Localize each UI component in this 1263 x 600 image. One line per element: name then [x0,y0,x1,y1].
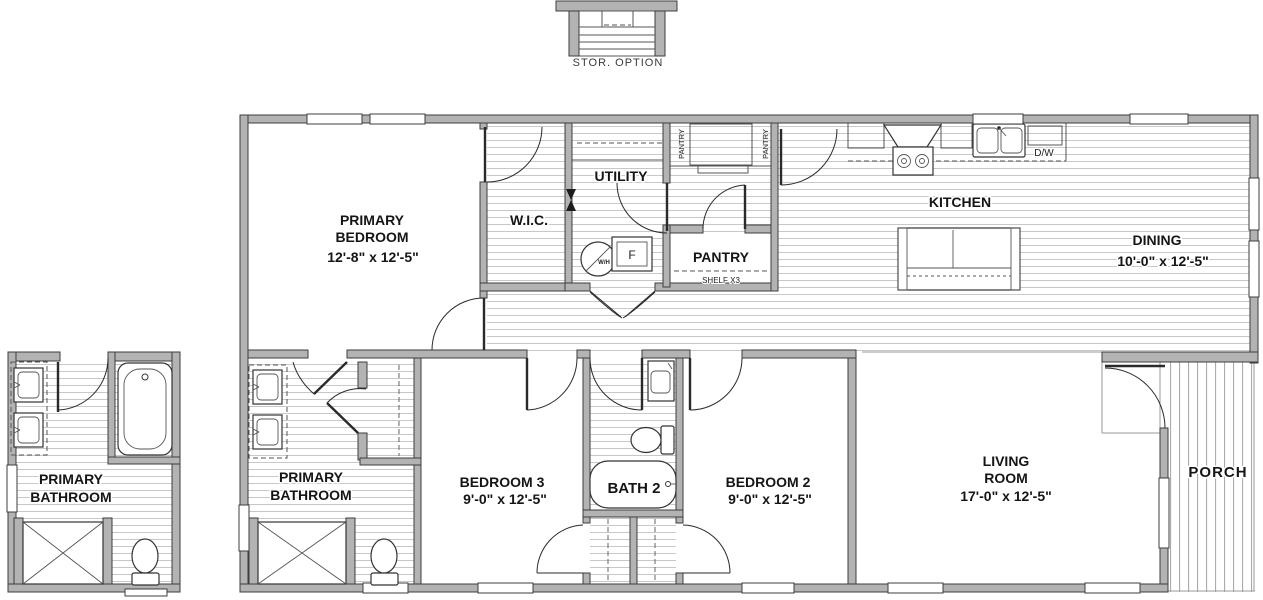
shower-icon [14,518,112,584]
closet-right-floor [637,517,676,584]
water-heater-label: W/H [598,260,610,266]
closet-right-door [683,525,730,573]
window [7,465,17,512]
bedroom2-label: BEDROOM 2 [726,474,811,490]
pantry-cabinet-right-label: PANTRY [761,129,770,159]
dining-label: DINING [1133,232,1182,248]
primary-bedroom-door [432,298,484,350]
living-room-label2: ROOM [984,470,1028,486]
bath-bed3-wall [414,358,421,584]
wic-floor [487,123,565,283]
floorplan-canvas: STOR. OPTION [0,0,1263,600]
dining-dims: 10'-0" x 12'-5" [1117,253,1209,269]
window [478,583,533,593]
bed2-living-wall [848,358,856,584]
shower-icon [249,518,355,584]
primary-bathroom-label2: BATHROOM [270,487,351,503]
window [1085,583,1140,593]
sink-icon [648,361,674,401]
bedroom2-dims: 9'-0" x 12'-5" [728,491,812,507]
bedroom2-door [690,358,742,410]
pantry-room-label: PANTRY [693,249,750,265]
primary-bedroom-label: PRIMARY [340,212,405,228]
dishwasher-label: D/W [1034,148,1054,159]
storage-post-right [655,11,665,56]
floorplan-page: STOR. OPTION [0,0,1263,600]
window [888,583,943,593]
utility-label: UTILITY [595,168,649,184]
door-threshold [125,589,167,596]
storage-roof [556,1,677,11]
bedroom3-door [527,358,577,410]
sink-icon [14,368,43,402]
window [1130,114,1188,124]
exterior-wall-right [1250,115,1258,363]
primary-bedroom-label2: BEDROOM [335,229,408,245]
primary-bedroom-dims: 12'-8" x 12'-5" [327,249,419,265]
window [239,505,249,551]
porch-entry-door [1105,366,1165,428]
window [1249,241,1259,297]
window [973,114,1023,124]
window [370,114,425,124]
pantry-shelf-note: SHELF X3 [702,276,740,285]
kitchen-label: KITCHEN [929,194,991,210]
bedroom3-dims: 9'-0" x 12'-5" [463,491,547,507]
freezer-label: F [628,248,635,262]
closet-left-door [537,525,583,573]
toilet-icon [371,539,398,585]
bath2-label: BATH 2 [607,480,660,497]
hall-floor [487,291,665,352]
storage-post-left [569,11,579,56]
storage-option: STOR. OPTION [556,1,677,69]
bathtub-icon [118,363,172,455]
sink-icon [253,370,282,404]
pantry-cabinet-left-label: PANTRY [677,129,686,159]
closet-left-floor [590,517,630,584]
living-room-label: LIVING [983,453,1030,469]
primary-bathroom-option-label: PRIMARY [39,471,104,487]
range-icon [884,125,941,175]
primary-bathroom-option-label2: BATHROOM [30,489,111,505]
primary-bathroom-label: PRIMARY [279,469,344,485]
bedroom3-label: BEDROOM 3 [460,474,545,490]
window [1159,478,1169,548]
toilet-icon [631,426,674,454]
wic-label: W.I.C. [510,212,548,228]
freezer-icon: F [612,237,652,271]
sink-icon [14,413,43,447]
kitchen-sink-icon [973,124,1025,157]
porch-top-wall [1102,352,1258,362]
living-room-dims: 17'-0" x 12'-5" [960,488,1052,504]
window [742,583,794,593]
sink-icon [253,415,282,449]
window [307,114,362,124]
storage-option-label: STOR. OPTION [573,57,664,69]
window [1249,178,1259,230]
water-heater-icon: W/H [581,242,615,276]
toilet-icon [132,539,159,585]
kitchen-island [898,228,1020,290]
porch-label: PORCH [1188,464,1247,481]
entry-floor [1102,360,1160,433]
